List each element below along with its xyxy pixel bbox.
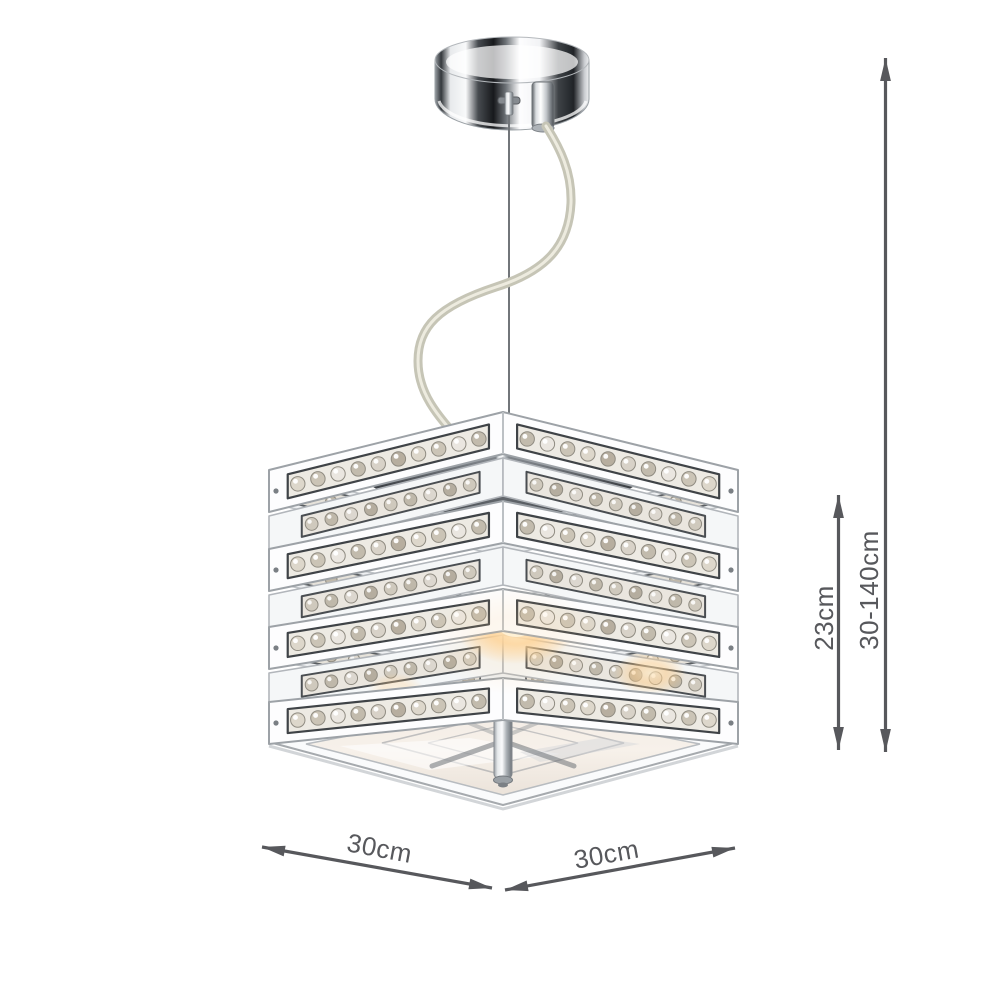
shade-height-dimension: 23cm <box>809 495 839 750</box>
drop-range-label: 30-140cm <box>854 530 884 650</box>
shade-height-label: 23cm <box>809 585 839 651</box>
cube-crystal-shade <box>269 412 738 809</box>
depth-dimension: 30cm <box>505 834 735 890</box>
suspension-cable <box>418 126 571 444</box>
width-dimension: 30cm <box>262 827 492 888</box>
product-image: 23cm 30-140cm 30cm 30cm <box>0 0 1000 1000</box>
ceiling-rose <box>435 37 589 130</box>
product-dimension-diagram: 23cm 30-140cm 30cm 30cm <box>0 0 1000 1000</box>
drop-range-dimension: 30-140cm <box>854 58 886 752</box>
